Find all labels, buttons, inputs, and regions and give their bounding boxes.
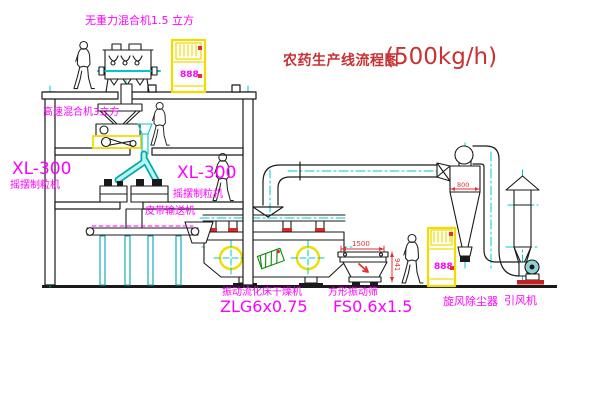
worker-figure-floor2 (151, 102, 169, 145)
cabinet-top-display: 888 (180, 71, 199, 80)
label-granulator-left-name: 摇摆制粒机 (10, 181, 60, 191)
worker-figure-roof (74, 41, 94, 88)
label-sieve-model: FS0.6x1.5 (333, 299, 412, 315)
cabinet-top-indicator (198, 46, 202, 50)
label-granulator-left-model: XL-300 (12, 161, 71, 178)
label-belt-conveyor: 皮带输送机 (145, 207, 195, 217)
diagram-title-capacity: (500kg/h) (385, 46, 497, 69)
vibrating-sieve (338, 246, 394, 286)
label-dryer-model: ZLG6x0.75 (220, 299, 308, 315)
worker-figure-ground (402, 235, 423, 284)
cabinet-right-display-dot (450, 266, 454, 270)
label-granulator-mid-name: 摇摆制粒机 (173, 190, 223, 200)
label-granulator-mid-model: XL-300 (177, 165, 236, 182)
label-high-speed-mixer: 高速混合机3立方 (43, 108, 119, 118)
label-cyclone: 旋风除尘器 (443, 296, 498, 307)
fluid-bed-dryer (185, 215, 352, 287)
dimension-cyclone-diameter: 800 (457, 182, 469, 189)
swing-granulators (100, 154, 168, 202)
induced-draft-fan (517, 260, 544, 285)
cabinet-right-indicator (449, 232, 453, 236)
process-flow-diagram: 农药生产线流程图 (500kg/h) 无重力混合机1.5 立方 高速混合机3立方… (0, 0, 600, 403)
cabinet-top-display-dot (198, 74, 202, 78)
dimension-sieve-length: 1500 (352, 241, 370, 248)
exhaust-duct (253, 162, 446, 217)
control-cabinet-right (428, 228, 455, 286)
dimension-sieve-height: 941 (393, 258, 400, 271)
diagram-title: 农药生产线流程图 (283, 54, 399, 68)
label-gravity-mixer: 无重力混合机1.5 立方 (85, 15, 194, 26)
label-fan: 引风机 (504, 295, 537, 306)
belt-conveyor (86, 209, 199, 285)
